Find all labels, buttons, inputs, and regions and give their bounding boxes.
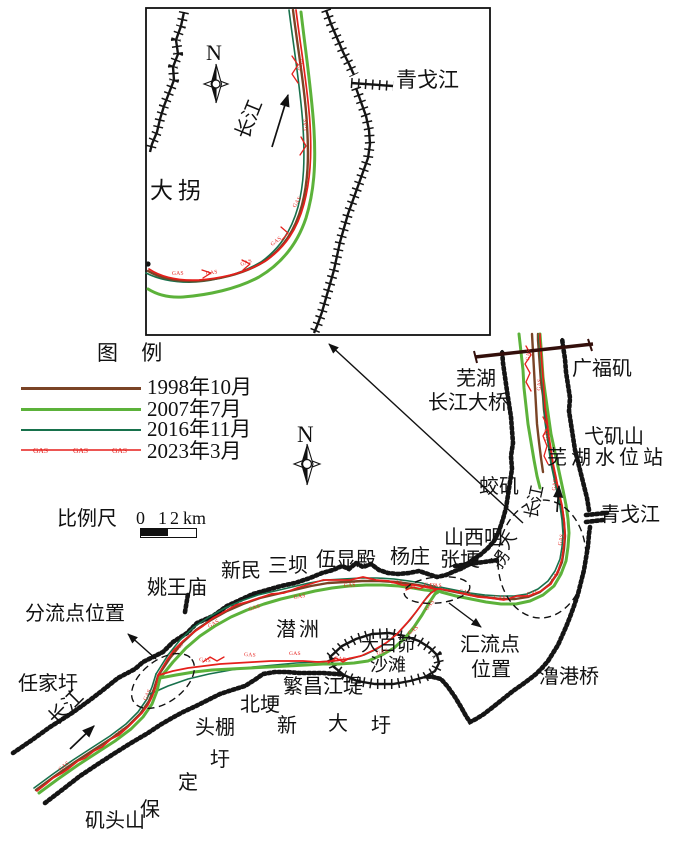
label-changjiang-daqiao: 长江大桥 — [428, 393, 508, 413]
label-xinmin: 新民 — [221, 561, 261, 581]
label-ding: 定 — [178, 773, 198, 793]
gas-marker: GAS — [391, 581, 403, 587]
gas-marker: GAS — [494, 596, 506, 602]
legend-title: 图 例 — [97, 343, 171, 364]
label-fanchang-jiangdi: 繁昌江堤 — [283, 677, 363, 697]
label-wei-1: 圩 — [371, 716, 391, 736]
scalebar-tick-2: 2 — [170, 509, 179, 527]
label-inset-qinggejiang: 青戈江 — [396, 70, 459, 91]
label-huiliudian: 汇流点 — [460, 635, 520, 655]
scalebar-tick-0: 0 — [136, 509, 145, 527]
label-qinggejiang: 青戈江 — [600, 505, 660, 525]
legend-label-1998: 1998年10月 — [147, 377, 252, 398]
bifurcation-label-arrow — [128, 634, 156, 659]
label-zhanggeng: 张埂 — [440, 550, 480, 570]
gas-marker: GAS — [537, 379, 544, 391]
legend-label-2023: 2023年3月 — [147, 441, 242, 462]
inset-left-bank-dot — [145, 261, 150, 266]
label-fenliudian-weizhi: 分流点位置 — [25, 604, 125, 624]
legend-gas-line: GAS GAS GAS — [21, 446, 141, 455]
gas-marker: GAS — [172, 272, 184, 278]
legend-gas-text-1: GAS — [33, 446, 48, 455]
inset-box — [146, 8, 490, 335]
label-yijishan: 弋矶山 — [584, 427, 644, 447]
legend-label-2016: 2016年11月 — [147, 419, 251, 440]
scalebar-unit: km — [183, 509, 206, 527]
label-jiaoji: 蛟矶 — [479, 477, 519, 497]
scalebar-frame — [140, 528, 197, 538]
confluence-label-arrow — [449, 603, 481, 627]
legend-line-2007 — [21, 408, 141, 411]
scalebar-label: 比例尺 — [57, 509, 117, 529]
label-lugangqiao: 澛港桥 — [539, 667, 599, 687]
gas-marker: GAS — [526, 349, 533, 361]
label-yaowangmiao: 姚王庙 — [147, 578, 207, 598]
flow-arrow-sw — [70, 726, 94, 749]
gas-marker: GAS — [405, 586, 417, 592]
legend-line-1998 — [21, 387, 141, 390]
label-wuxiandian: 伍显殿 — [316, 550, 376, 570]
scalebar-tick-1: 1 — [158, 509, 167, 527]
scalebar-filled-segment — [141, 529, 168, 536]
label-da: 大 — [328, 714, 348, 734]
label-guangfuji: 广福矶 — [572, 359, 632, 379]
label-inset-daguai: 大拐 — [150, 179, 206, 202]
compass-main-n: N — [297, 422, 314, 447]
label-yangzhuang: 杨庄 — [390, 547, 430, 567]
legend-line-2016 — [21, 429, 141, 431]
label-toupeng: 头棚 — [195, 718, 235, 738]
label-jitoushan: 矶头山 — [85, 811, 145, 831]
label-wuhu-shuiweizhan: 芜湖水位站 — [547, 448, 667, 468]
label-sanba: 三坝 — [268, 556, 308, 576]
label-beigeng: 北埂 — [240, 695, 280, 715]
compass-main: N — [294, 422, 320, 485]
gas-marker: GAS — [430, 584, 442, 590]
gas-marker: GAS — [344, 583, 356, 589]
map-figure: N — [0, 0, 690, 843]
gas-marker: GAS — [334, 657, 346, 663]
compass-inset-n: N — [206, 40, 222, 65]
gas-marker: GAS — [289, 652, 301, 658]
legend-gas-text-3: GAS — [112, 446, 127, 455]
gas-marker: GAS — [459, 590, 471, 597]
label-huiliu-weizhi: 位置 — [471, 660, 511, 680]
legend-gas-text-2: GAS — [73, 446, 88, 455]
label-wuhu: 芜湖 — [456, 369, 496, 389]
label-xin: 新 — [277, 716, 297, 736]
label-shanxizui: 山西咀 — [444, 528, 504, 548]
gas-marker: GAS — [244, 653, 256, 659]
label-shatan: 沙滩 — [370, 656, 406, 674]
label-qianzhou: 潜洲 — [276, 620, 322, 640]
label-wei-2: 圩 — [210, 750, 230, 770]
gas-marker: GAS — [199, 658, 211, 665]
